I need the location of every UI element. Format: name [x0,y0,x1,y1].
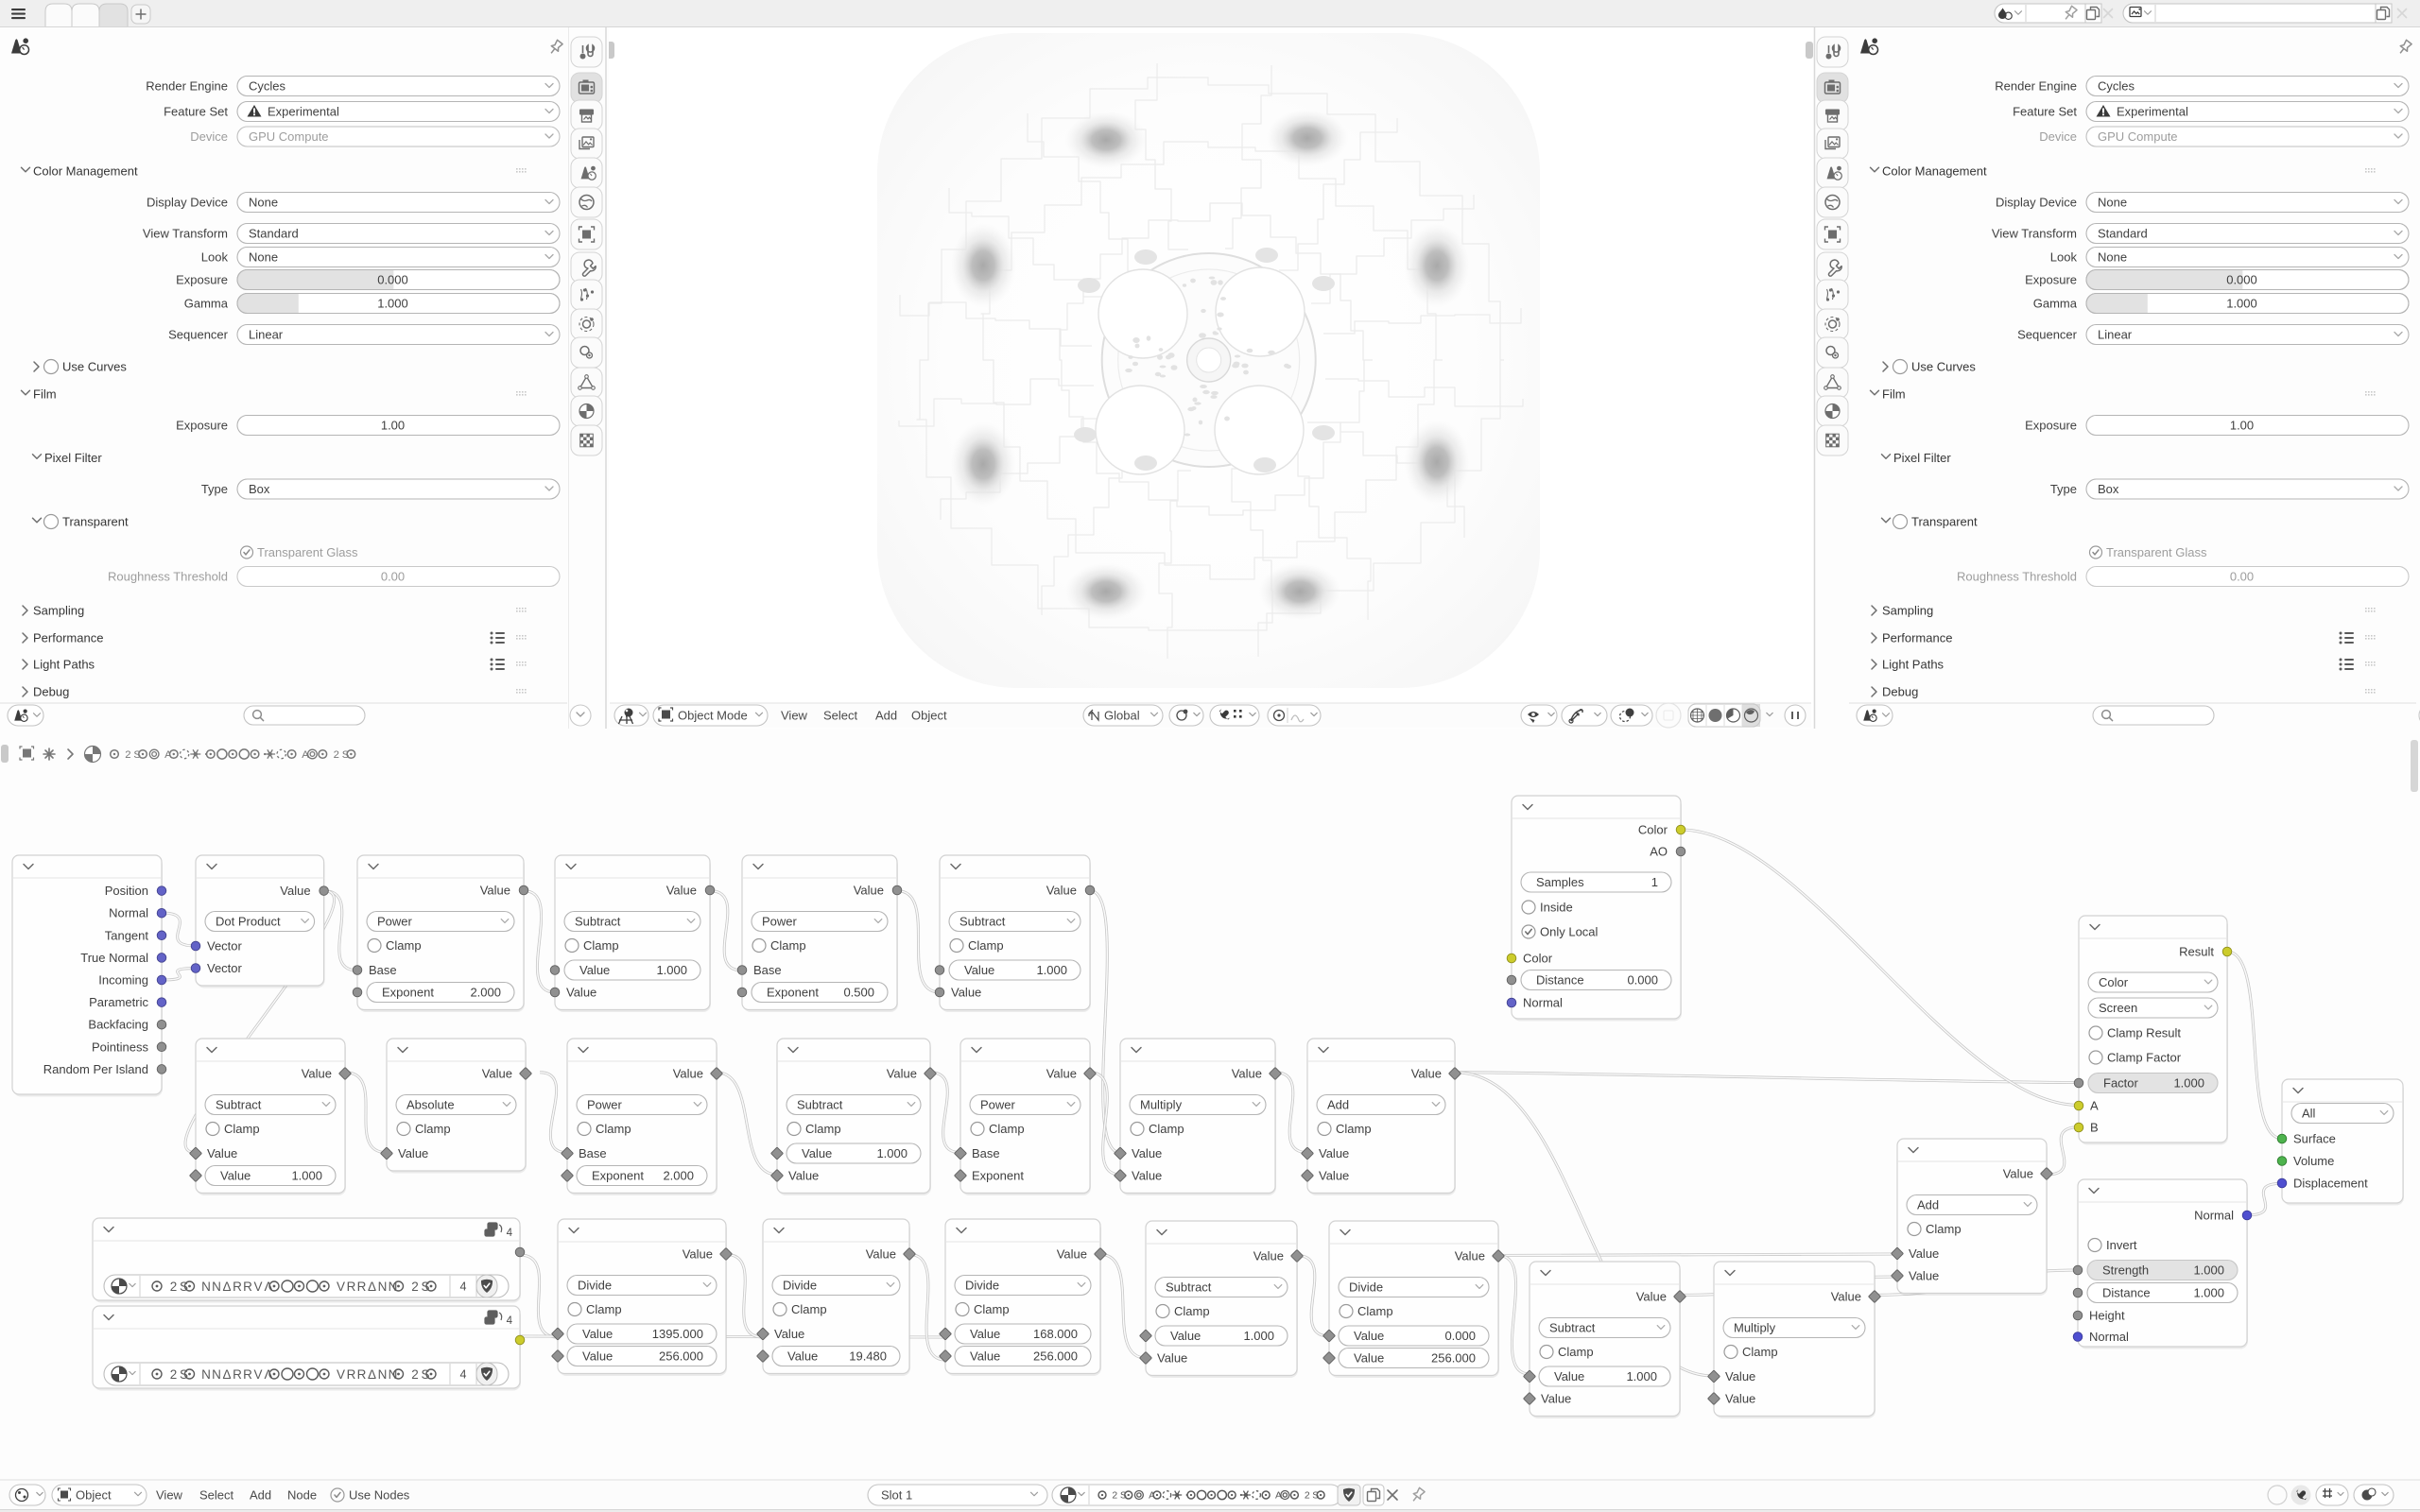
svg-text:Slot 1: Slot 1 [881,1488,912,1503]
svg-text:Displacement: Displacement [2293,1177,2368,1191]
svg-text:Clamp: Clamp [1336,1122,1372,1136]
svg-text:Value: Value [1909,1246,1939,1261]
svg-text:Δ: Δ [368,1367,376,1382]
svg-text:256.000: 256.000 [1033,1349,1078,1364]
svg-text:Object: Object [76,1488,112,1503]
svg-text:S: S [180,1280,188,1294]
svg-text:Exposure: Exposure [176,273,228,287]
svg-text:Δ: Δ [368,1280,376,1294]
svg-text:1.00: 1.00 [381,419,405,433]
svg-text:Feature Set: Feature Set [164,105,228,119]
svg-text:Linear: Linear [249,328,284,342]
svg-text:Value: Value [1636,1290,1667,1304]
svg-text:2: 2 [1305,1491,1310,1502]
svg-text:2.000: 2.000 [470,986,501,1000]
svg-text:Clamp: Clamp [974,1302,1010,1316]
svg-text:Invert: Invert [2106,1238,2137,1252]
svg-text:Exponent: Exponent [592,1169,644,1183]
svg-text:Performance: Performance [33,631,103,645]
svg-text:Pointiness: Pointiness [92,1039,148,1054]
svg-text:4: 4 [507,1315,513,1327]
svg-text:V: V [337,1280,345,1294]
svg-text:2: 2 [125,749,130,761]
svg-text:Base: Base [972,1146,1000,1160]
svg-text:N: N [201,1367,211,1382]
svg-text:Clamp: Clamp [415,1122,451,1136]
svg-text:R: R [243,1367,252,1382]
svg-text:Value: Value [1725,1392,1755,1406]
svg-text:Value: Value [1909,1269,1939,1283]
svg-text:Value: Value [2003,1167,2033,1181]
svg-text:Value: Value [480,884,510,898]
svg-text:Subtract: Subtract [1166,1280,1212,1295]
svg-text:Clamp: Clamp [770,938,806,953]
svg-text:Value: Value [866,1247,896,1262]
svg-text:Value: Value [398,1146,428,1160]
svg-text:Value: Value [1541,1392,1571,1406]
svg-text:Value: Value [683,1247,713,1262]
svg-text:Distance: Distance [1536,973,1584,988]
svg-text:Subtract: Subtract [959,915,1006,929]
svg-text:1.000: 1.000 [1626,1369,1657,1383]
svg-text:Select: Select [823,709,858,723]
svg-text:Color: Color [2099,975,2129,989]
svg-text:0.000: 0.000 [1627,973,1658,988]
svg-text:1: 1 [1651,875,1658,889]
svg-text:Clamp: Clamp [989,1122,1025,1136]
svg-text:1.000: 1.000 [2193,1263,2224,1278]
svg-text:Normal: Normal [1523,996,1563,1010]
svg-text:Global: Global [1104,709,1140,723]
svg-text:S: S [421,1280,429,1294]
svg-text:Multiply: Multiply [1140,1098,1183,1112]
svg-text:Object: Object [911,709,947,723]
svg-text:Value: Value [1554,1369,1584,1383]
svg-text:Clamp: Clamp [1558,1345,1594,1359]
svg-text:Clamp: Clamp [224,1122,260,1136]
svg-text:Value: Value [482,1067,512,1081]
svg-text:Only Local: Only Local [1540,925,1599,939]
svg-text:Value: Value [566,986,596,1000]
svg-text:Transparent: Transparent [62,515,129,529]
svg-text:Value: Value [1411,1067,1442,1081]
svg-text:Power: Power [762,915,798,929]
svg-text:Power: Power [377,915,413,929]
svg-text:Parametric: Parametric [89,995,148,1009]
svg-text:Display Device: Display Device [147,196,228,210]
svg-text:Position: Position [105,884,148,898]
svg-text:Value: Value [802,1146,832,1160]
svg-text:Λ: Λ [264,1367,272,1382]
svg-text:Value: Value [1170,1329,1201,1343]
svg-text:Clamp Factor: Clamp Factor [2107,1051,2182,1065]
svg-text:2: 2 [334,749,339,761]
svg-text:View: View [156,1488,183,1503]
svg-text:Λ: Λ [264,1280,272,1294]
svg-text:Clamp: Clamp [1742,1345,1778,1359]
svg-text:Base: Base [579,1146,607,1160]
svg-text:A: A [2090,1099,2099,1113]
svg-text:R: R [347,1367,356,1382]
svg-text:Value: Value [302,1067,332,1081]
svg-text:168.000: 168.000 [1033,1327,1078,1341]
svg-text:1.000: 1.000 [2193,1286,2224,1300]
svg-text:1.000: 1.000 [2173,1076,2204,1091]
svg-text:Value: Value [1253,1249,1284,1263]
svg-text:Value: Value [582,1349,613,1364]
svg-text:Value: Value [774,1327,804,1341]
svg-text:2: 2 [1112,1491,1117,1502]
svg-text:Value: Value [1831,1290,1861,1304]
svg-text:Value: Value [666,884,697,898]
svg-text:Value: Value [964,963,994,977]
svg-text:Subtract: Subtract [216,1098,262,1112]
svg-text:Pixel Filter: Pixel Filter [44,451,102,465]
svg-text:1395.000: 1395.000 [652,1327,703,1341]
svg-text:Value: Value [1046,1067,1077,1081]
svg-text:Gamma: Gamma [184,297,229,311]
svg-text:Cycles: Cycles [249,79,286,94]
svg-text:Divide: Divide [783,1279,817,1293]
svg-text:Clamp: Clamp [805,1122,841,1136]
svg-text:Object Mode: Object Mode [678,709,748,723]
svg-text:1.000: 1.000 [291,1169,322,1183]
svg-text:Film: Film [33,387,57,402]
svg-text:Clamp: Clamp [596,1122,631,1136]
svg-text:Multiply: Multiply [1734,1321,1776,1335]
svg-text:Clamp: Clamp [1174,1304,1210,1318]
svg-text:Δ: Δ [222,1280,231,1294]
svg-text:Distance: Distance [2102,1286,2151,1300]
svg-text:Value: Value [280,884,310,898]
svg-text:N: N [378,1280,388,1294]
svg-text:Value: Value [887,1067,917,1081]
svg-text:Subtract: Subtract [575,915,621,929]
svg-text:Clamp: Clamp [586,1302,622,1316]
svg-text:2.000: 2.000 [663,1169,694,1183]
svg-text:N: N [212,1280,221,1294]
svg-text:Value: Value [1319,1146,1349,1160]
svg-text:Dot Product: Dot Product [216,915,281,929]
svg-text:Value: Value [207,1146,237,1160]
svg-text:1.000: 1.000 [1243,1329,1274,1343]
svg-text:Value: Value [1057,1247,1087,1262]
svg-text:Type: Type [201,482,228,496]
svg-text:Value: Value [788,1169,819,1183]
svg-text:S: S [180,1367,188,1382]
svg-text:Color: Color [1523,952,1553,966]
svg-text:R: R [347,1280,356,1294]
svg-text:Add: Add [250,1488,271,1503]
svg-text:Value: Value [1455,1249,1485,1263]
svg-text:Inside: Inside [1540,901,1573,915]
svg-text:V: V [337,1367,345,1382]
svg-text:4: 4 [460,1368,467,1382]
svg-text:0.500: 0.500 [843,986,874,1000]
svg-text:4: 4 [507,1228,513,1239]
svg-text:0.000: 0.000 [377,273,408,287]
svg-text:Absolute: Absolute [406,1098,455,1112]
svg-text:AO: AO [1650,845,1668,859]
svg-text:256.000: 256.000 [1431,1351,1476,1366]
svg-text:Render Engine: Render Engine [146,79,228,94]
svg-text:Screen: Screen [2099,1001,2137,1015]
svg-text:Clamp: Clamp [583,938,619,953]
svg-text:Normal: Normal [2089,1330,2129,1344]
svg-text:R: R [357,1280,367,1294]
svg-text:2: 2 [411,1280,419,1294]
svg-text:Value: Value [1354,1329,1384,1343]
svg-text:Value: Value [1157,1351,1187,1366]
svg-text:Node: Node [287,1488,317,1503]
svg-text:Select: Select [199,1488,234,1503]
svg-text:Divide: Divide [578,1279,612,1293]
svg-text:1.000: 1.000 [656,963,687,977]
svg-text:Sampling: Sampling [33,604,84,618]
svg-text:Exponent: Exponent [767,986,819,1000]
svg-text:Add: Add [875,709,897,723]
svg-text:Value: Value [1354,1351,1384,1366]
svg-text:Debug: Debug [33,685,69,699]
svg-text:Normal: Normal [2194,1209,2234,1223]
svg-text:Experimental: Experimental [268,105,339,119]
svg-text:Value: Value [582,1327,613,1341]
svg-text:Sequencer: Sequencer [168,328,229,342]
svg-text:Divide: Divide [1349,1280,1383,1295]
svg-text:Base: Base [369,963,397,977]
svg-text:2: 2 [170,1367,178,1382]
svg-text:S: S [421,1367,429,1382]
svg-text:Use Curves: Use Curves [62,360,127,374]
svg-text:Height: Height [2089,1309,2125,1323]
svg-text:Roughness Threshold: Roughness Threshold [108,570,228,584]
svg-text:Power: Power [587,1098,623,1112]
svg-text:Value: Value [1046,884,1077,898]
svg-text:Value: Value [951,986,981,1000]
svg-text:N: N [201,1280,211,1294]
svg-text:Value: Value [579,963,610,977]
svg-text:2: 2 [170,1280,178,1294]
svg-text:R: R [233,1280,242,1294]
svg-text:True Normal: True Normal [80,951,148,965]
svg-text:R: R [357,1367,367,1382]
svg-text:Clamp: Clamp [791,1302,827,1316]
svg-text:Value: Value [854,884,884,898]
svg-text:Clamp Result: Clamp Result [2107,1026,2181,1040]
svg-text:R: R [243,1280,252,1294]
svg-text:Value: Value [970,1327,1000,1341]
svg-text:Divide: Divide [965,1279,999,1293]
svg-text:Subtract: Subtract [797,1098,843,1112]
svg-text:Samples: Samples [1536,875,1584,889]
svg-text:Color: Color [1638,823,1668,837]
svg-text:N: N [378,1367,388,1382]
svg-text:View: View [781,709,808,723]
svg-text:Add: Add [1917,1198,1939,1212]
svg-text:Value: Value [220,1169,251,1183]
svg-text:Exponent: Exponent [382,986,434,1000]
svg-text:Clamp: Clamp [1926,1222,1962,1236]
svg-text:1.000: 1.000 [1036,963,1067,977]
svg-text:Use Nodes: Use Nodes [349,1488,410,1503]
svg-text:None: None [249,196,278,210]
svg-text:Power: Power [980,1098,1016,1112]
svg-text:Value: Value [1132,1146,1162,1160]
svg-text:GPU Compute: GPU Compute [249,129,329,144]
svg-text:Clamp: Clamp [1357,1304,1393,1318]
svg-text:Tangent: Tangent [105,928,149,942]
svg-text:Vector: Vector [207,939,243,954]
svg-text:R: R [233,1367,242,1382]
svg-text:1.000: 1.000 [876,1146,907,1160]
svg-text:Value: Value [673,1067,703,1081]
svg-text:Result: Result [2179,945,2214,959]
svg-text:Light Paths: Light Paths [33,658,95,672]
svg-text:Value: Value [1132,1169,1162,1183]
svg-text:Base: Base [753,963,782,977]
svg-text:All: All [2302,1107,2316,1121]
svg-text:Look: Look [201,250,229,265]
svg-text:Device: Device [190,129,228,144]
svg-text:None: None [249,250,278,265]
svg-text:Value: Value [1232,1067,1262,1081]
svg-text:Value: Value [1725,1369,1755,1383]
svg-text:Add: Add [1327,1098,1349,1112]
svg-text:Exponent: Exponent [972,1169,1024,1183]
svg-text:N: N [212,1367,221,1382]
svg-text:Clamp: Clamp [968,938,1004,953]
svg-text:0.00: 0.00 [381,570,405,584]
svg-text:Normal: Normal [109,906,148,920]
svg-text:Exposure: Exposure [176,419,228,433]
svg-text:Value: Value [1319,1169,1349,1183]
svg-text:Vector: Vector [207,961,243,975]
svg-text:Clamp: Clamp [1149,1122,1184,1136]
svg-text:Backfacing: Backfacing [88,1018,148,1032]
svg-text:View Transform: View Transform [143,227,228,241]
svg-text:1.000: 1.000 [377,297,408,311]
svg-text:Incoming: Incoming [98,973,148,988]
svg-text:Value: Value [970,1349,1000,1364]
svg-text:Factor: Factor [2103,1076,2139,1091]
svg-text:Volume: Volume [2293,1154,2334,1168]
svg-text:Δ: Δ [222,1367,231,1382]
svg-text:2: 2 [411,1367,419,1382]
svg-text:19.480: 19.480 [849,1349,887,1364]
svg-text:Subtract: Subtract [1549,1321,1596,1335]
svg-text:V: V [253,1367,262,1382]
svg-text:Strength: Strength [2102,1263,2149,1278]
svg-text:Surface: Surface [2293,1132,2336,1146]
svg-text:Value: Value [787,1349,818,1364]
svg-text:4: 4 [460,1280,467,1294]
svg-text:B: B [2090,1121,2099,1135]
svg-text:Transparent Glass: Transparent Glass [257,545,358,559]
svg-text:V: V [253,1280,262,1294]
svg-text:Box: Box [249,482,270,496]
svg-text:Clamp: Clamp [386,938,422,953]
svg-text:0.000: 0.000 [1444,1329,1476,1343]
svg-text:Random Per Island: Random Per Island [43,1062,148,1076]
svg-text:Standard: Standard [249,227,299,241]
svg-text:Color Management: Color Management [33,164,138,179]
svg-text:256.000: 256.000 [659,1349,703,1364]
